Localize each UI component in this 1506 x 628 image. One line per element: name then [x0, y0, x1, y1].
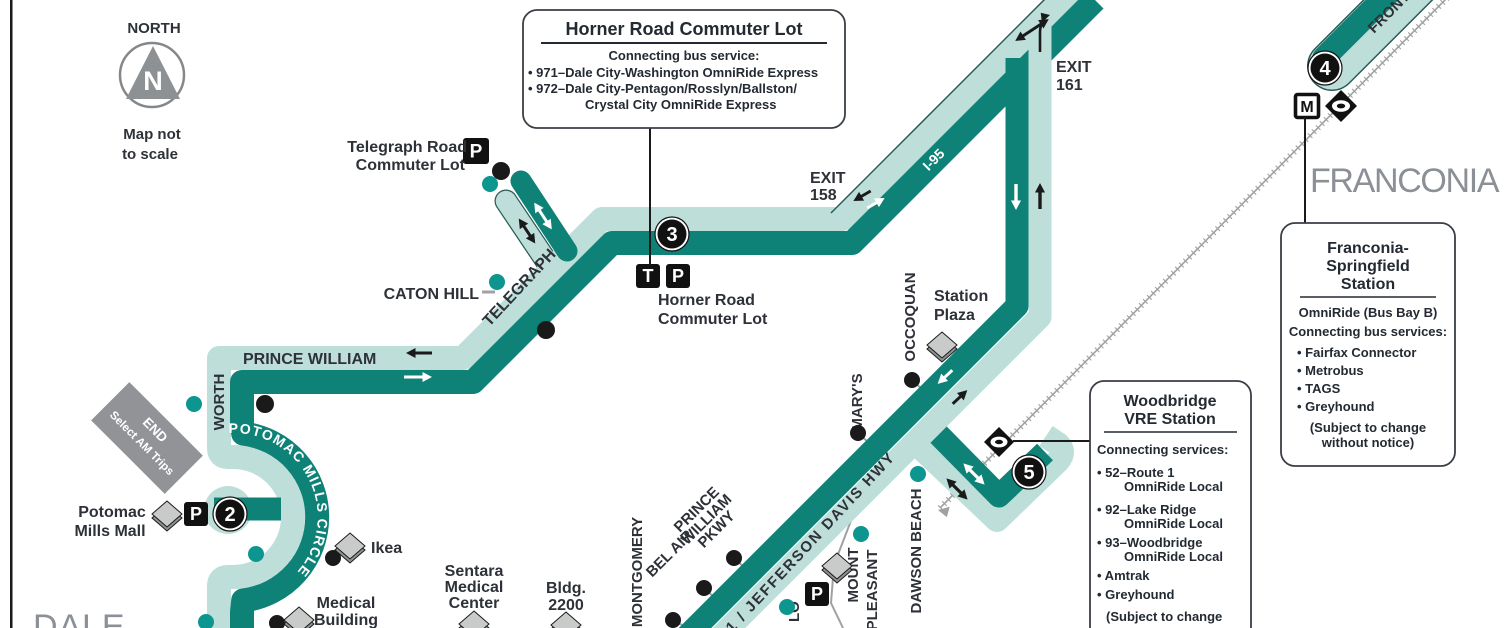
- svg-text:3: 3: [666, 224, 677, 246]
- svg-text:Station: Station: [1341, 276, 1395, 293]
- svg-text:5: 5: [1023, 462, 1034, 484]
- svg-text:2: 2: [224, 504, 235, 526]
- svg-text:WORTH: WORTH: [211, 374, 228, 431]
- svg-text:OmniRide Local: OmniRide Local: [1124, 549, 1223, 564]
- svg-text:Plaza: Plaza: [934, 307, 975, 324]
- svg-text:• 52–Route 1: • 52–Route 1: [1097, 465, 1175, 480]
- svg-text:T: T: [643, 266, 654, 286]
- svg-text:Station: Station: [934, 288, 988, 305]
- svg-text:• 92–Lake Ridge: • 92–Lake Ridge: [1097, 502, 1196, 517]
- svg-text:• Greyhound: • Greyhound: [1297, 399, 1375, 414]
- svg-text:Horner Road: Horner Road: [658, 292, 755, 309]
- svg-text:without notice): without notice): [1321, 435, 1414, 450]
- svg-text:MONTGOMERY: MONTGOMERY: [629, 517, 646, 627]
- svg-text:• Fairfax Connector: • Fairfax Connector: [1297, 345, 1416, 360]
- svg-text:161: 161: [1056, 77, 1083, 94]
- svg-text:Potomac: Potomac: [78, 504, 146, 521]
- svg-text:OmniRide Local: OmniRide Local: [1124, 479, 1223, 494]
- svg-text:Horner Road Commuter Lot: Horner Road Commuter Lot: [565, 19, 802, 39]
- svg-text:OCCOQUAN: OCCOQUAN: [902, 272, 919, 361]
- svg-text:• Metrobus: • Metrobus: [1297, 363, 1364, 378]
- svg-text:DAWSON BEACH: DAWSON BEACH: [908, 488, 925, 613]
- svg-text:PRINCE WILLIAM: PRINCE WILLIAM: [243, 351, 376, 368]
- svg-text:Commuter Lot: Commuter Lot: [658, 311, 768, 328]
- svg-text:Ikea: Ikea: [371, 540, 402, 557]
- svg-text:(Subject to change: (Subject to change: [1310, 420, 1426, 435]
- svg-text:• Amtrak: • Amtrak: [1097, 568, 1150, 583]
- svg-text:Medical: Medical: [445, 579, 504, 596]
- svg-text:4: 4: [1319, 58, 1331, 80]
- svg-text:Commuter Lot: Commuter Lot: [356, 157, 466, 174]
- svg-text:Woodbridge: Woodbridge: [1123, 393, 1216, 410]
- svg-text:(Subject to change: (Subject to change: [1106, 609, 1222, 624]
- svg-text:2200: 2200: [548, 597, 584, 614]
- svg-text:DALE: DALE: [33, 608, 125, 628]
- svg-text:P: P: [190, 504, 202, 524]
- svg-text:• 971–Dale City-Washington Omn: • 971–Dale City-Washington OmniRide Expr…: [528, 65, 818, 80]
- svg-text:MARY'S: MARY'S: [849, 373, 866, 430]
- svg-text:Bldg.: Bldg.: [546, 580, 586, 597]
- svg-text:FRANCONIA: FRANCONIA: [1310, 162, 1500, 200]
- svg-text:MOUNT: MOUNT: [845, 548, 862, 603]
- svg-text:• 93–Woodbridge: • 93–Woodbridge: [1097, 535, 1202, 550]
- svg-text:M: M: [1300, 99, 1313, 116]
- svg-text:P: P: [811, 584, 823, 604]
- svg-text:Telegraph Road: Telegraph Road: [347, 139, 467, 156]
- svg-text:EXIT: EXIT: [1056, 59, 1092, 76]
- svg-text:to scale: to scale: [122, 146, 178, 163]
- svg-text:Medical: Medical: [317, 595, 376, 612]
- svg-text:PLEASANT: PLEASANT: [864, 550, 881, 628]
- svg-text:Connecting bus service:: Connecting bus service:: [609, 48, 760, 63]
- svg-text:OmniRide Local: OmniRide Local: [1124, 516, 1223, 531]
- svg-text:EXIT: EXIT: [810, 170, 846, 187]
- svg-text:• 972–Dale City-Pentagon/Rossl: • 972–Dale City-Pentagon/Rosslyn/Ballsto…: [528, 81, 797, 96]
- svg-text:Connecting bus services:: Connecting bus services:: [1289, 324, 1447, 339]
- svg-text:• TAGS: • TAGS: [1297, 381, 1341, 396]
- svg-text:VRE Station: VRE Station: [1124, 411, 1216, 428]
- svg-text:Crystal City OmniRide Express: Crystal City OmniRide Express: [585, 97, 776, 112]
- svg-text:• Greyhound: • Greyhound: [1097, 587, 1175, 602]
- svg-text:Building: Building: [314, 612, 378, 628]
- svg-text:Connecting services:: Connecting services:: [1097, 442, 1229, 457]
- svg-text:P: P: [470, 142, 483, 163]
- svg-text:Mills Mall: Mills Mall: [74, 523, 145, 540]
- svg-text:NORTH: NORTH: [127, 20, 180, 37]
- svg-text:OmniRide (Bus Bay B): OmniRide (Bus Bay B): [1299, 305, 1438, 320]
- svg-text:CATON HILL: CATON HILL: [384, 286, 480, 303]
- svg-text:Sentara: Sentara: [445, 563, 504, 580]
- svg-text:Franconia-: Franconia-: [1327, 240, 1409, 257]
- svg-text:158: 158: [810, 187, 837, 204]
- svg-text:Springfield: Springfield: [1326, 258, 1410, 275]
- svg-text:N: N: [143, 66, 163, 96]
- svg-text:P: P: [672, 266, 684, 286]
- svg-text:Map not: Map not: [123, 126, 181, 143]
- svg-text:Center: Center: [449, 595, 500, 612]
